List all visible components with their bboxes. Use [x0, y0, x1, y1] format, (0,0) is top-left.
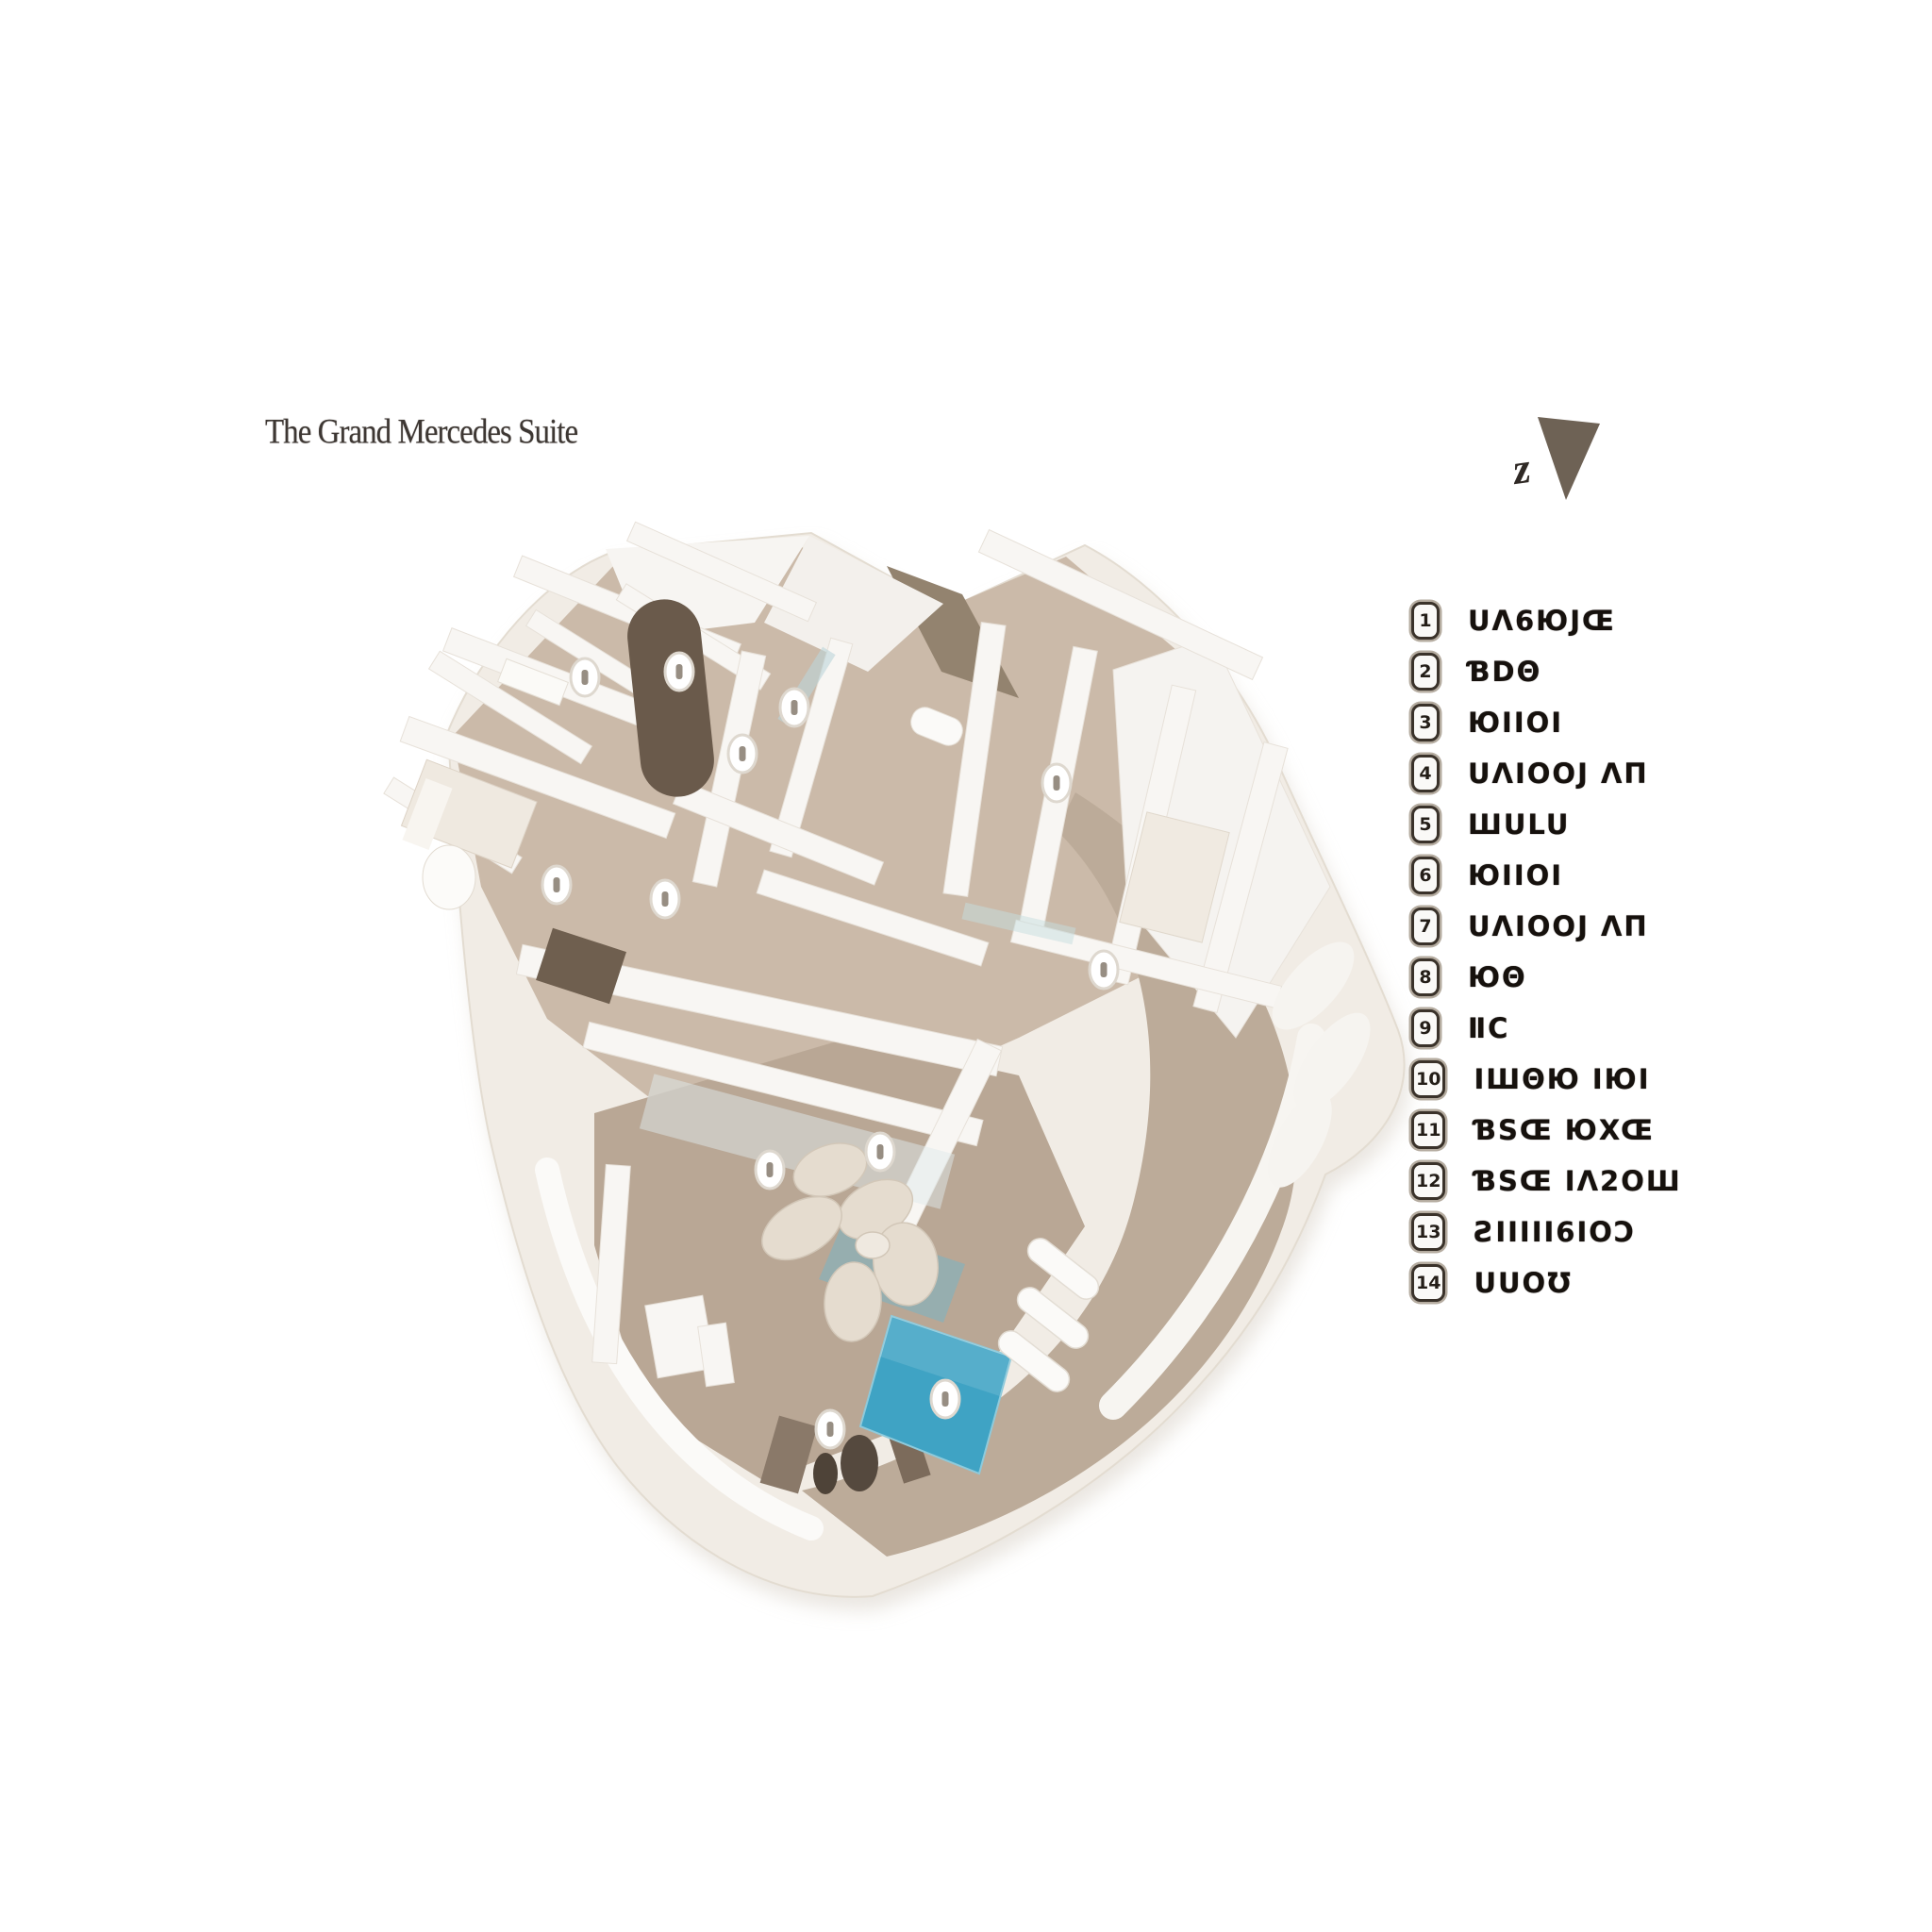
legend-item-number-badge: 14 [1411, 1264, 1445, 1302]
legend-item-number-badge: 2 [1411, 653, 1440, 691]
legend-item: 9ⅡC [1411, 1008, 1682, 1047]
legend-item-label: ШULU [1468, 808, 1570, 841]
legend-item-number-badge: 5 [1411, 806, 1440, 843]
legend-item-label: ЮΘ [1468, 961, 1527, 993]
legend-item-number-badge: 4 [1411, 755, 1440, 792]
legend: 1UΛ6ЮJŒ2ƁDΘ3ЮIIОI4UΛIООJ ΛΠ5ШULU6ЮIIОI7U… [1411, 601, 1682, 1302]
legend-item-label: ƧIIIII6IОƆ [1474, 1216, 1636, 1248]
north-arrow: z [1509, 408, 1613, 511]
legend-item-label: UΛ6ЮJŒ [1468, 605, 1616, 637]
dark-chair-small [813, 1453, 838, 1494]
legend-item-number-badge: 1 [1411, 602, 1440, 640]
legend-item: 10IШΘЮ IЮI [1411, 1059, 1682, 1098]
dark-chair-large [841, 1435, 878, 1491]
legend-item-number-badge: 7 [1411, 908, 1440, 945]
legend-item-label: ƁSŒ IΛ2ОШ [1474, 1165, 1681, 1197]
legend-item: 1UΛ6ЮJŒ [1411, 601, 1682, 640]
legend-item-label: UUОƱ [1474, 1267, 1572, 1299]
north-triangle [1538, 417, 1600, 500]
legend-item-label: IШΘЮ IЮI [1474, 1063, 1650, 1095]
page: The Grand Mercedes Suite z [0, 0, 1932, 1932]
legend-item: 13ƧIIIII6IОƆ [1411, 1212, 1682, 1251]
page-title: The Grand Mercedes Suite [265, 413, 577, 452]
floor-plan [358, 509, 1434, 1641]
legend-item-label: ЮIIОI [1468, 859, 1563, 891]
legend-item-label: ƁSŒ ЮXŒ [1474, 1114, 1655, 1146]
legend-item-number-badge: 3 [1411, 704, 1440, 741]
legend-item-number-badge: 12 [1411, 1162, 1445, 1200]
legend-item-number-badge: 8 [1411, 958, 1440, 996]
legend-item: 2ƁDΘ [1411, 652, 1682, 691]
legend-item: 3ЮIIОI [1411, 703, 1682, 741]
legend-item: 4UΛIООJ ΛΠ [1411, 754, 1682, 792]
legend-item-number-badge: 11 [1411, 1111, 1445, 1149]
legend-item-number-badge: 10 [1411, 1060, 1445, 1098]
legend-item: 8ЮΘ [1411, 958, 1682, 996]
legend-item-label: UΛIООJ ΛΠ [1468, 758, 1649, 790]
round-table [423, 845, 475, 909]
legend-item: 7UΛIООJ ΛΠ [1411, 907, 1682, 945]
legend-item-number-badge: 6 [1411, 857, 1440, 894]
legend-item: 5ШULU [1411, 805, 1682, 843]
legend-item: 11ƁSŒ ЮXŒ [1411, 1110, 1682, 1149]
legend-item-label: ЮIIОI [1468, 707, 1563, 739]
legend-item: 6ЮIIОI [1411, 856, 1682, 894]
legend-item-label: ƁDΘ [1468, 656, 1541, 688]
legend-item: 14UUОƱ [1411, 1263, 1682, 1302]
legend-item-label: ⅡC [1468, 1012, 1509, 1044]
legend-item-number-badge: 13 [1411, 1213, 1445, 1251]
legend-item-label: UΛIООJ ΛΠ [1468, 910, 1649, 942]
legend-item: 12ƁSŒ IΛ2ОШ [1411, 1161, 1682, 1200]
legend-item-number-badge: 9 [1411, 1009, 1440, 1047]
